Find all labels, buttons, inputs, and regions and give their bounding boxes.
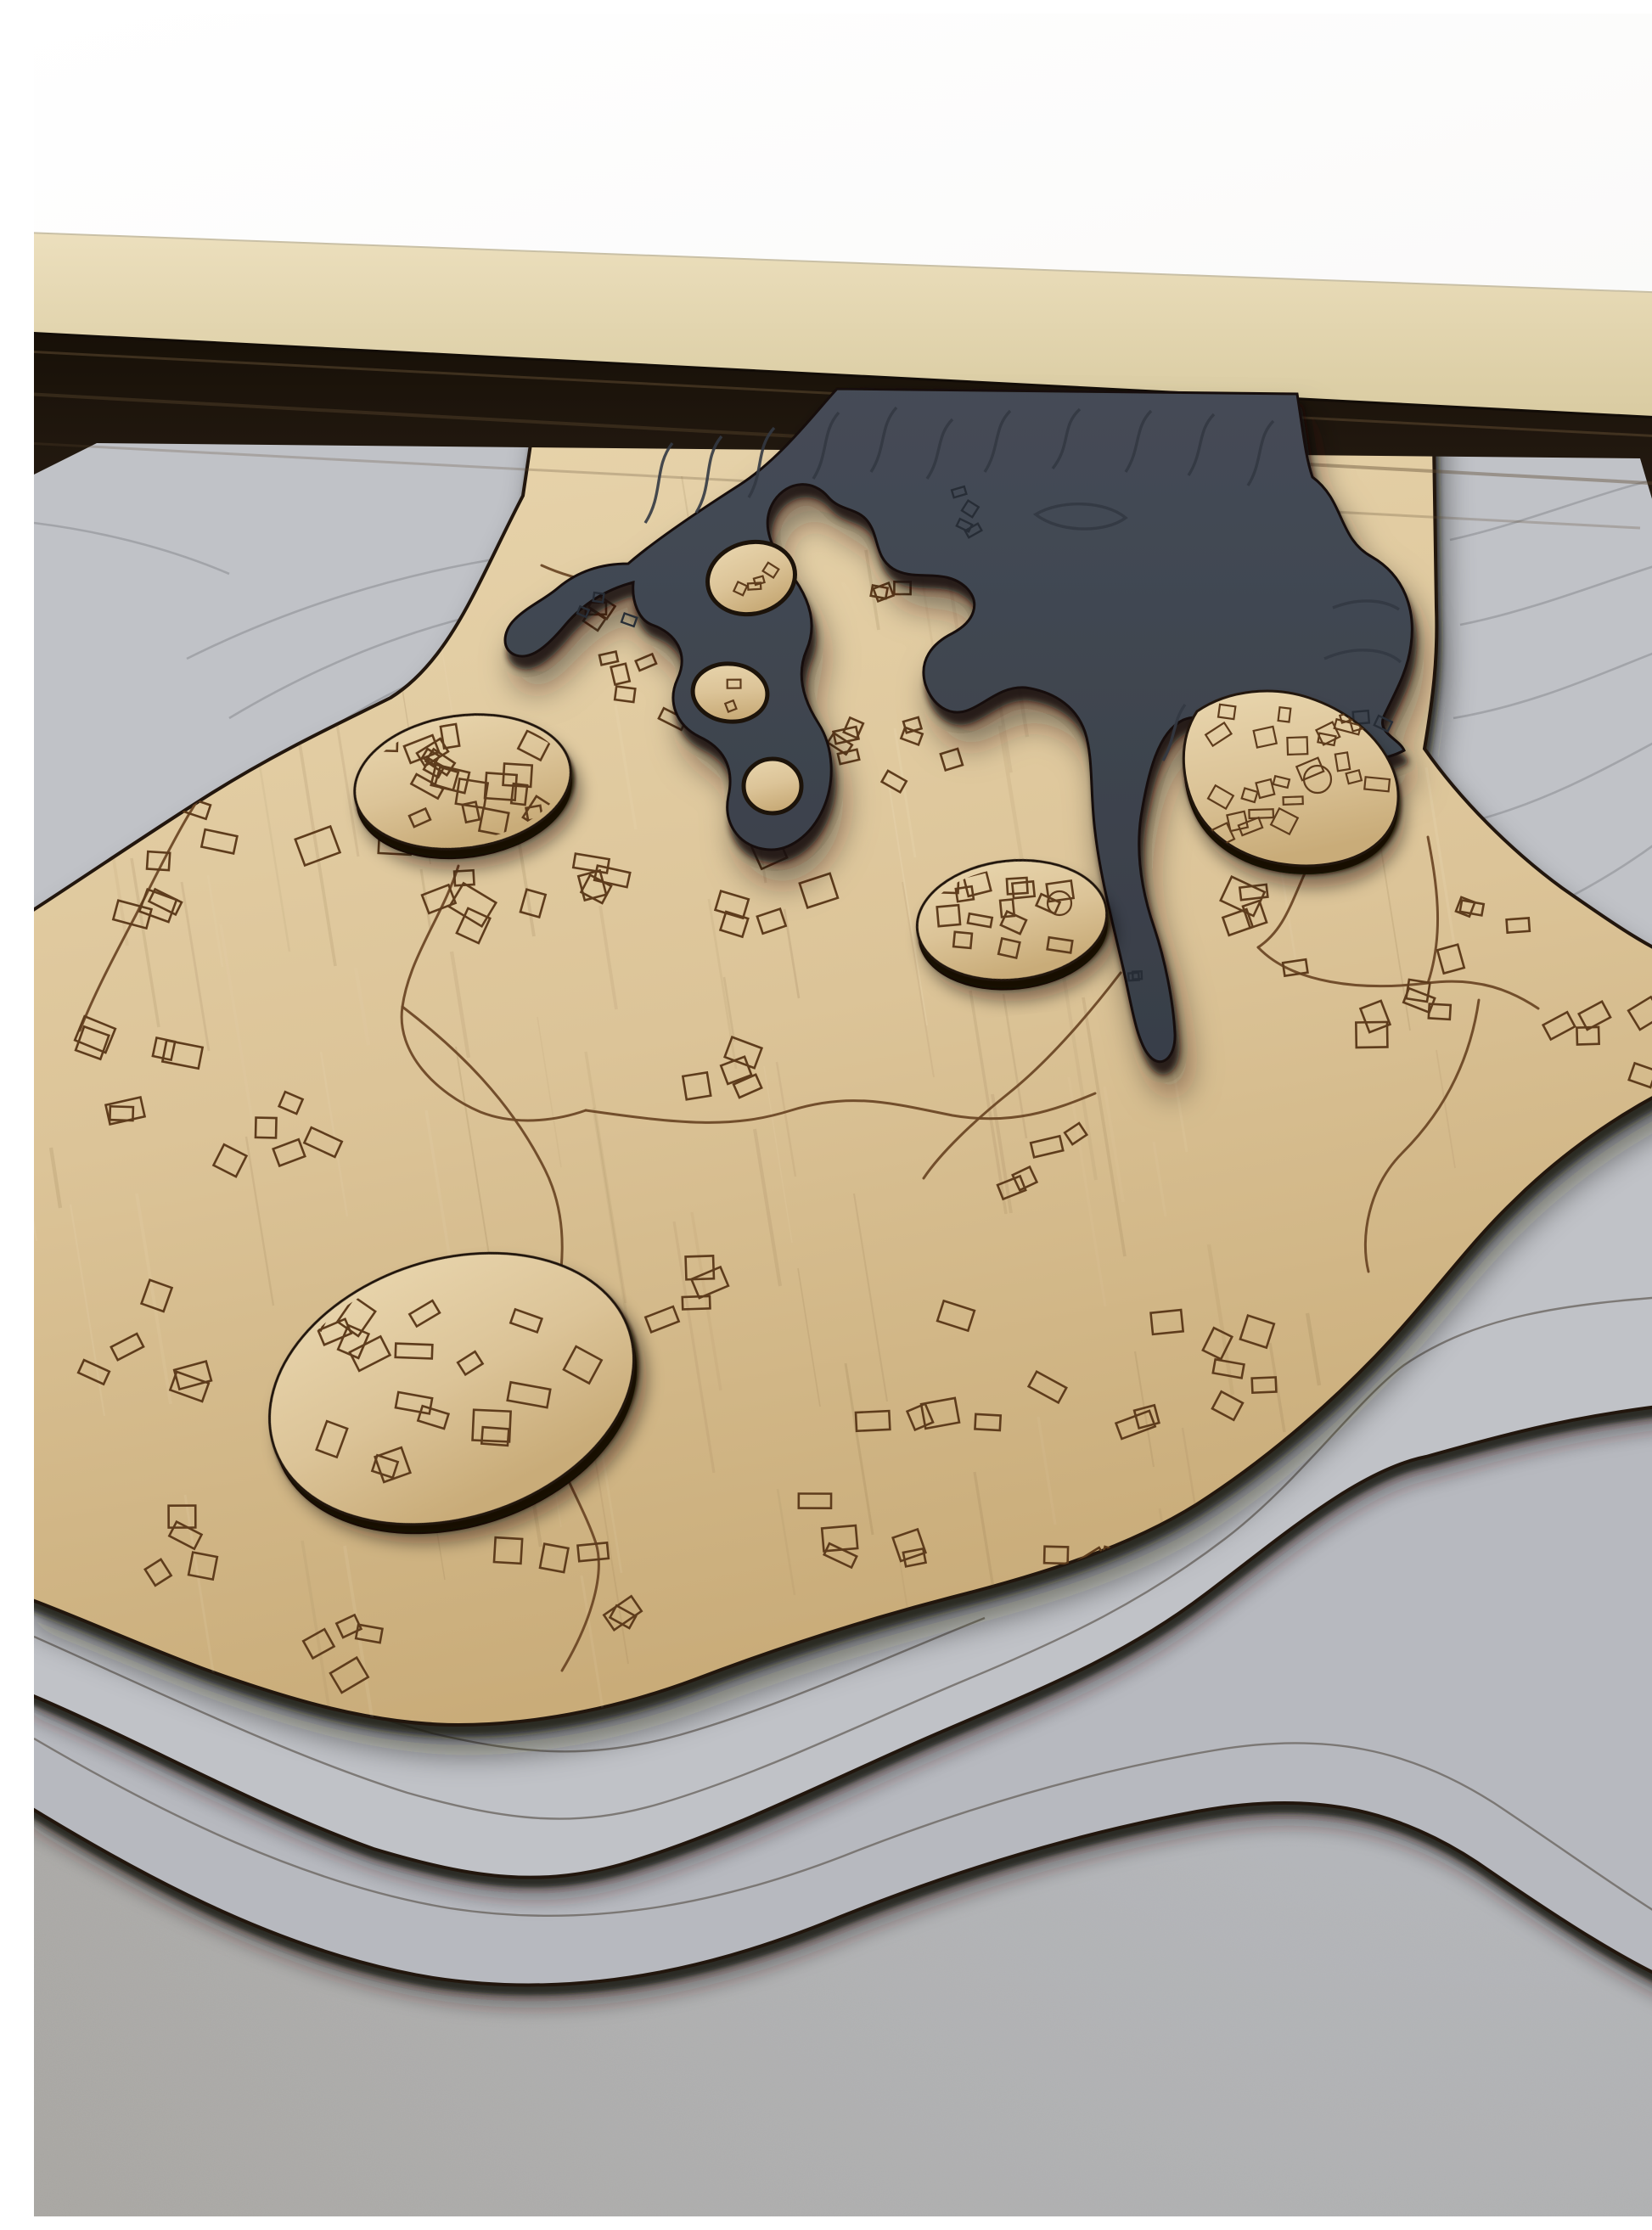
wood-island [744, 759, 801, 813]
artwork-svg [34, 14, 1652, 2216]
framed-wood-map-photo [34, 14, 1652, 2216]
artwork-root [34, 14, 1652, 2216]
